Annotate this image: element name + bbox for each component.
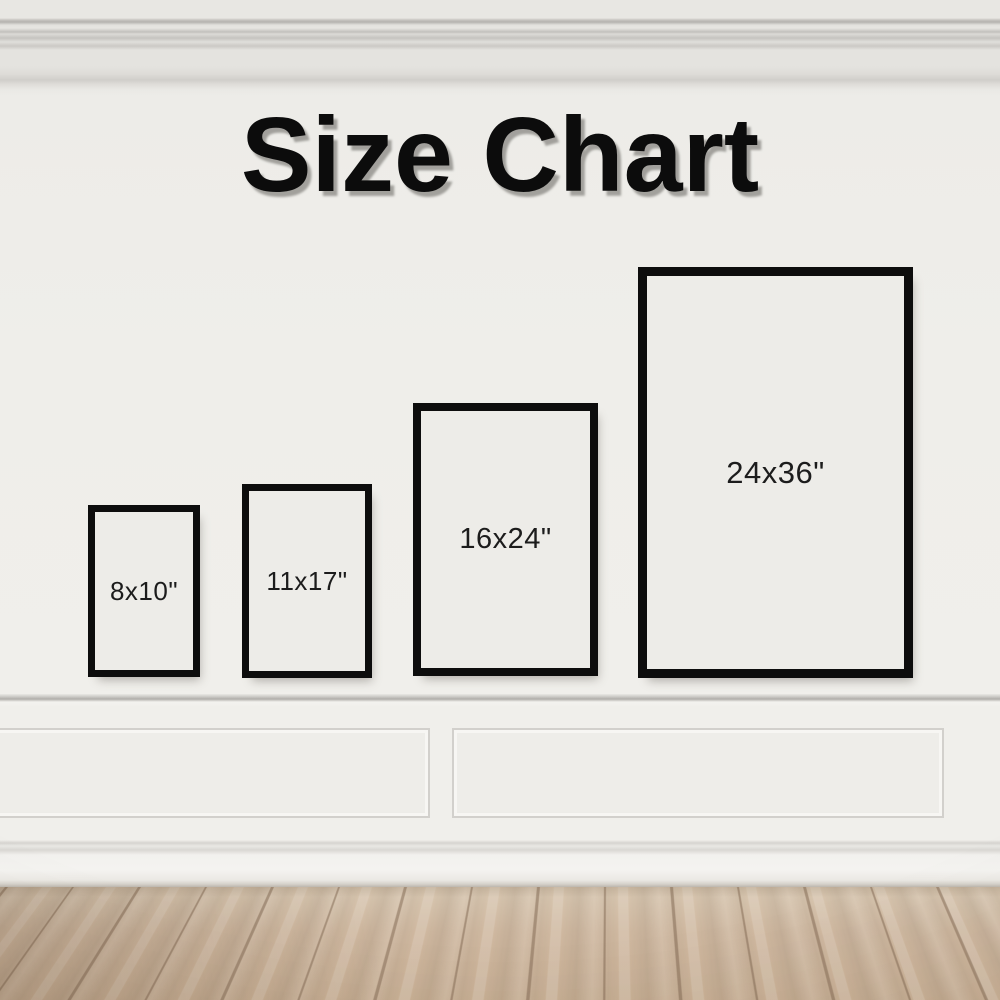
size-label-11x17: 11x17" — [266, 566, 347, 597]
size-label-16x24: 16x24" — [459, 523, 551, 556]
floor-shadow-overlay — [0, 887, 1000, 1000]
crown-molding — [0, 0, 1000, 96]
chair-rail-molding — [0, 694, 1000, 706]
size-frame-11x17: 11x17" — [242, 484, 372, 678]
page-title: Size Chart — [0, 102, 1000, 208]
wainscot-panel-left — [0, 728, 430, 818]
wainscot-panel-right — [452, 728, 944, 818]
size-frame-8x10: 8x10" — [88, 505, 200, 677]
size-frame-24x36: 24x36" — [638, 267, 913, 678]
size-frame-16x24: 16x24" — [413, 403, 598, 676]
room-scene: Size Chart 8x10" 11x17" 16x24" 24x36" — [0, 0, 1000, 1000]
wood-floor — [0, 887, 1000, 1000]
size-label-24x36: 24x36" — [726, 455, 824, 491]
size-label-8x10: 8x10" — [110, 576, 178, 607]
wainscoting — [0, 706, 1000, 840]
baseboard — [0, 840, 1000, 887]
